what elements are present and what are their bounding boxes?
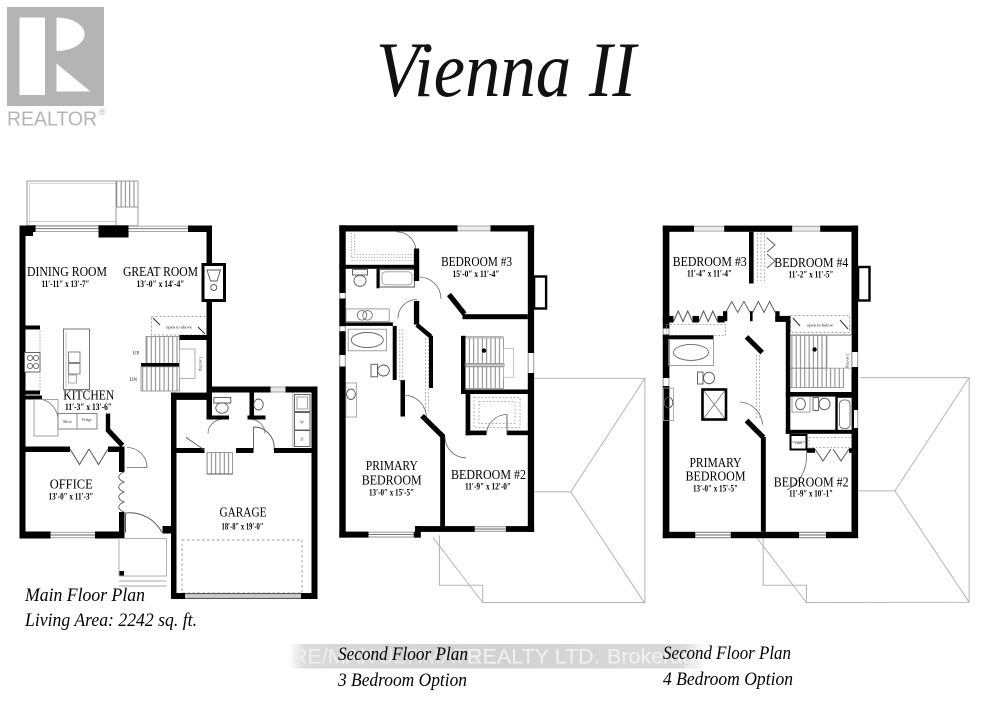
svg-text:15′-0″ x 11′-4″: 15′-0″ x 11′-4″ [453, 269, 500, 279]
svg-text:BEDROOM: BEDROOM [362, 473, 422, 488]
svg-text:13′-0″ x 15′-5″: 13′-0″ x 15′-5″ [693, 484, 738, 494]
svg-text:GREAT ROOM: GREAT ROOM [123, 264, 198, 279]
svg-text:DINING ROOM: DINING ROOM [27, 264, 107, 279]
svg-text:11′-9″ x 12′-0″: 11′-9″ x 12′-0″ [465, 482, 511, 492]
svg-text:Landing: Landing [199, 357, 204, 372]
svg-text:Second Floor Plan: Second Floor Plan [663, 643, 791, 664]
svg-text:Landing: Landing [846, 354, 851, 369]
svg-text:GARAGE: GARAGE [220, 506, 267, 521]
svg-text:Living Area: 2242 sq. ft.: Living Area: 2242 sq. ft. [24, 610, 197, 631]
svg-text:11′-4″ x 11′-4″: 11′-4″ x 11′-4″ [687, 269, 732, 279]
svg-text:REALTY LTD.: REALTY LTD. [467, 645, 600, 669]
svg-text:DN: DN [130, 378, 138, 383]
svg-text:W: W [300, 420, 304, 425]
svg-text:BEDROOM: BEDROOM [686, 469, 746, 484]
svg-text:Vienna II: Vienna II [376, 26, 640, 113]
svg-text:Fridge: Fridge [82, 418, 92, 422]
svg-text:BEDROOM #3: BEDROOM #3 [441, 254, 512, 269]
svg-text:Main Floor Plan: Main Floor Plan [24, 585, 145, 606]
svg-text:BEDROOM #4: BEDROOM #4 [774, 255, 848, 270]
svg-text:18′-8″ x 19′-0″: 18′-8″ x 19′-0″ [222, 522, 264, 532]
svg-text:D: D [301, 437, 304, 442]
svg-text:Linen: Linen [795, 441, 803, 445]
svg-text:13′-0″ x 11′-3″: 13′-0″ x 11′-3″ [49, 492, 94, 502]
svg-text:11′-3″ x 13′-6″: 11′-3″ x 13′-6″ [65, 402, 112, 412]
svg-text:open to below: open to below [807, 323, 834, 328]
svg-text:UP: UP [133, 352, 140, 357]
svg-text:BEDROOM #3: BEDROOM #3 [673, 254, 747, 269]
svg-text:PRIMARY: PRIMARY [366, 458, 418, 473]
svg-text:REALTOR: REALTOR [7, 108, 97, 131]
svg-text:BEDROOM #2: BEDROOM #2 [774, 475, 849, 490]
svg-text:3 Bedroom Option: 3 Bedroom Option [337, 670, 467, 691]
svg-text:11′-2″ x 11′-5″: 11′-2″ x 11′-5″ [789, 270, 834, 280]
svg-text:11′-11″ x 13′-7″: 11′-11″ x 13′-7″ [42, 279, 90, 289]
svg-text:13′-0″ x 14′-4″: 13′-0″ x 14′-4″ [137, 279, 185, 289]
svg-text:Micro: Micro [63, 420, 72, 424]
svg-text:open to above: open to above [166, 325, 192, 330]
svg-text:13′-0″ x 15′-5″: 13′-0″ x 15′-5″ [369, 488, 414, 498]
svg-text:®: ® [99, 107, 106, 117]
svg-text:11′-9″ x 10′-1″: 11′-9″ x 10′-1″ [789, 489, 833, 499]
svg-text:4 Bedroom Option: 4 Bedroom Option [663, 669, 793, 690]
svg-text:BEDROOM #2: BEDROOM #2 [451, 467, 526, 482]
svg-text:Second Floor Plan: Second Floor Plan [338, 644, 468, 665]
svg-text:OFFICE: OFFICE [50, 478, 93, 493]
